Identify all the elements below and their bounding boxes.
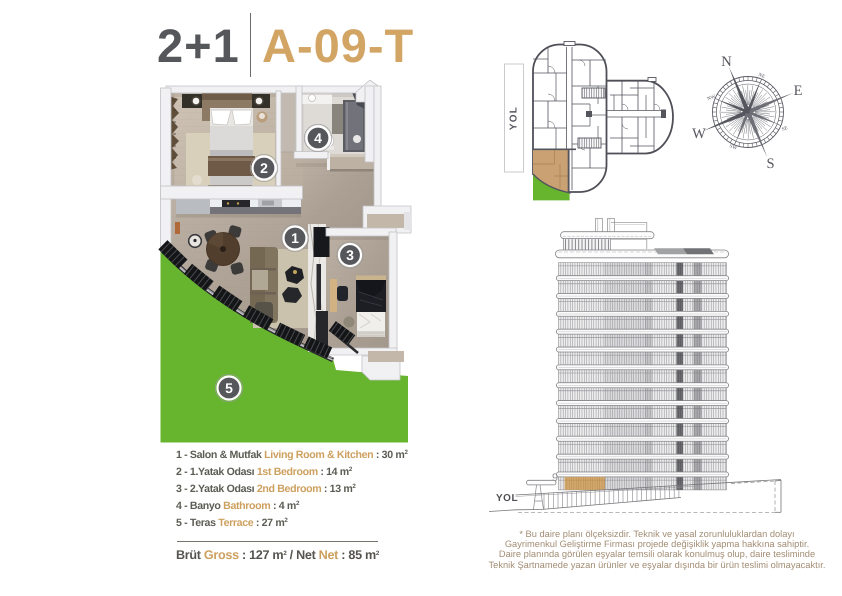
svg-text:2: 2 [260,160,268,176]
svg-text:E: E [794,83,803,99]
svg-text:N: N [721,54,732,70]
svg-text:4: 4 [314,130,322,146]
svg-text:SE: SE [781,125,789,133]
svg-text:5: 5 [225,380,233,396]
svg-text:SW: SW [729,143,738,151]
svg-text:YOL: YOL [509,106,520,130]
svg-text:3: 3 [346,247,354,263]
svg-text:NW: NW [706,93,716,102]
svg-text:1: 1 [291,230,299,246]
svg-text:YOL: YOL [496,493,518,504]
svg-text:S: S [766,156,774,172]
svg-text:W: W [692,126,706,142]
svg-text:NE: NE [757,72,765,80]
